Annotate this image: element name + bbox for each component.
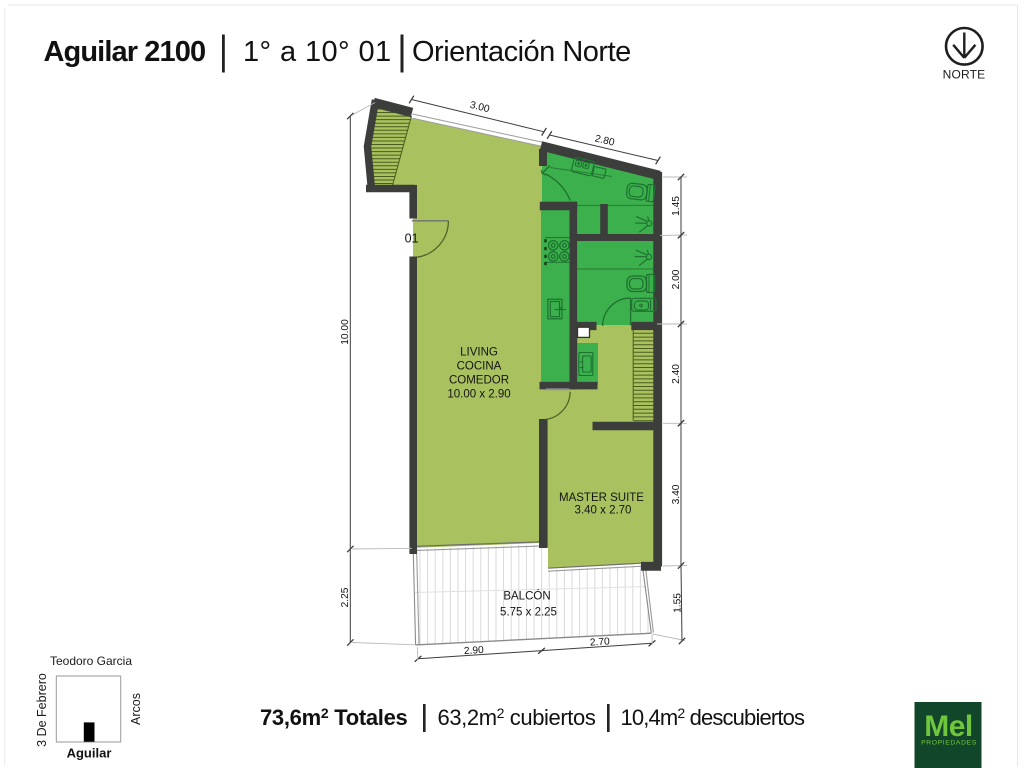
svg-text:10,4m2 descubiertos: 10,4m2 descubiertos xyxy=(621,705,805,730)
svg-text:BALCÓN: BALCÓN xyxy=(503,590,550,603)
svg-text:2.25: 2.25 xyxy=(340,587,351,607)
svg-text:3.00: 3.00 xyxy=(469,100,491,115)
svg-text:PROPIEDADES: PROPIEDADES xyxy=(921,740,977,747)
svg-text:Orientación Norte: Orientación Norte xyxy=(412,36,631,68)
svg-text:1.55: 1.55 xyxy=(673,593,684,613)
svg-text:01: 01 xyxy=(405,232,419,246)
svg-text:NORTE: NORTE xyxy=(943,68,986,82)
svg-text:Aguilar: Aguilar xyxy=(67,746,112,761)
svg-text:3 De Febrero: 3 De Febrero xyxy=(35,673,49,747)
svg-text:Aguilar 2100: Aguilar 2100 xyxy=(44,36,206,68)
svg-text:73,6m2 Totales: 73,6m2 Totales xyxy=(260,705,408,730)
svg-text:2.70: 2.70 xyxy=(590,636,611,648)
svg-text:63,2m2 cubiertos: 63,2m2 cubiertos xyxy=(438,705,596,730)
svg-text:5.75 x 2.25: 5.75 x 2.25 xyxy=(500,607,557,619)
svg-text:2.40: 2.40 xyxy=(671,364,682,384)
svg-text:Arcos: Arcos xyxy=(129,693,143,725)
svg-text:3.40 x 2.70: 3.40 x 2.70 xyxy=(575,505,632,517)
svg-text:1° a 10° 01: 1° a 10° 01 xyxy=(243,36,392,68)
svg-text:Teodoro Garcia: Teodoro Garcia xyxy=(50,654,132,668)
svg-text:COMEDOR: COMEDOR xyxy=(449,375,509,387)
svg-text:LIVING: LIVING xyxy=(460,347,498,359)
svg-text:2.90: 2.90 xyxy=(464,645,485,657)
svg-text:MASTER SUITE: MASTER SUITE xyxy=(559,492,644,504)
svg-text:Mel: Mel xyxy=(924,710,973,743)
svg-text:10.00: 10.00 xyxy=(340,319,351,345)
svg-text:10.00 x 2.90: 10.00 x 2.90 xyxy=(447,389,510,401)
svg-text:COCINA: COCINA xyxy=(457,361,502,373)
svg-text:1.45: 1.45 xyxy=(671,196,682,216)
svg-text:3.40: 3.40 xyxy=(671,484,682,504)
svg-text:2.00: 2.00 xyxy=(671,269,682,289)
